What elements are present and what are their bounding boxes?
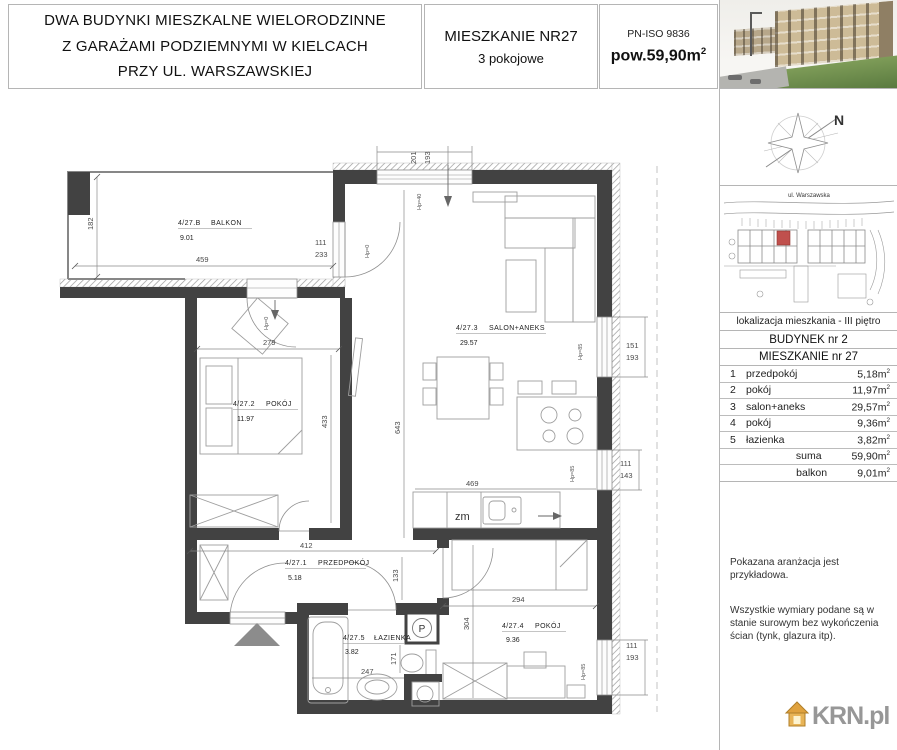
room-id-salon: 4/27.3 xyxy=(456,325,478,332)
wardrobe-hall xyxy=(200,545,228,600)
location-line: lokalizacja mieszkania - III piętro xyxy=(720,313,897,331)
row-name: suma xyxy=(746,450,851,462)
entrance-marker xyxy=(234,623,280,646)
total-area: pow.59,90m2 xyxy=(611,46,706,65)
photo-car xyxy=(750,79,761,84)
dim-182: 182 xyxy=(86,217,95,230)
toilet xyxy=(401,650,436,676)
dim-304: 304 xyxy=(462,617,471,630)
row-area: 11,97m2 xyxy=(852,384,890,397)
row-area: 3,82m2 xyxy=(857,434,890,447)
norm-label: PN-ISO 9836 xyxy=(627,28,689,40)
krn-logo: KRN.pl xyxy=(784,700,889,727)
table-row-suma: suma 59,90m2 xyxy=(720,449,897,466)
dim-193: 193 xyxy=(626,653,639,662)
room-name-balkon: BALKON xyxy=(211,220,242,227)
armchair xyxy=(232,298,288,354)
row-name: balkon xyxy=(746,467,857,479)
bedroom2-window xyxy=(597,640,612,695)
dim-294: 294 xyxy=(512,595,525,604)
dimension-labels: 459 182 111 233 201 193 279 433 643 151 … xyxy=(86,151,639,676)
bedroom-balcony-door xyxy=(247,279,297,298)
ann-hp40: Hp=40 xyxy=(417,194,423,210)
shaft-label: P xyxy=(419,624,426,635)
compass-north-label: N xyxy=(834,112,844,128)
compass-rose: N xyxy=(720,89,897,185)
bathroom-door-opening xyxy=(348,603,396,615)
note-dimensions: Wszystkie wymiary podane są w stanie sur… xyxy=(730,604,892,643)
project-title-line3: PRZY UL. WARSZAWSKIEJ xyxy=(118,59,313,85)
dim-247: 247 xyxy=(361,667,374,676)
row-name: pokój xyxy=(746,384,852,396)
coffee-table xyxy=(506,260,536,312)
project-title-line2: Z GARAŻAMI PODZIEMNYMI W KIELCACH xyxy=(62,34,368,60)
table-row: 3 salon+aneks 29,57m2 xyxy=(720,399,897,416)
room-id-pokoj4: 4/27.4 xyxy=(502,623,524,630)
dim-643: 643 xyxy=(393,421,402,434)
krn-house-icon xyxy=(784,700,810,727)
dim-111: 111 xyxy=(620,459,631,468)
room-name-salon: SALON+ANEKS xyxy=(489,325,545,332)
row-area: 29,57m2 xyxy=(851,401,890,414)
compass-box: N xyxy=(720,89,897,186)
room-area-pokoj4: 9.36 xyxy=(506,637,520,644)
dim-193: 193 xyxy=(626,353,639,362)
desk xyxy=(507,666,565,698)
wardrobe-bedroom2 xyxy=(443,663,507,699)
row-name: pokój xyxy=(746,417,857,429)
dim-279: 279 xyxy=(263,338,276,347)
row-name: łazienka xyxy=(746,434,857,446)
room-id-balkon: 4/27.B xyxy=(178,220,201,227)
room-name-pokoj2: POKÓJ xyxy=(266,399,292,408)
ann-hp85: Hp=85 xyxy=(570,466,576,482)
dining-table xyxy=(423,357,503,419)
room-id-lazienka: 4/27.5 xyxy=(343,635,365,642)
dim-459: 459 xyxy=(196,255,209,264)
table-row: 1 przedpokój 5,18m2 xyxy=(720,366,897,383)
photo-car xyxy=(728,75,742,80)
norm-area-box: PN-ISO 9836 pow.59,90m2 xyxy=(599,4,718,89)
bedroom-door-opening xyxy=(279,528,309,540)
room-area-balkon: 9.01 xyxy=(180,235,194,242)
dim-111: 111 xyxy=(626,641,637,650)
dim-433: 433 xyxy=(320,415,329,428)
sofa xyxy=(505,196,595,322)
table-row: 5 łazienka 3,82m2 xyxy=(720,432,897,449)
krn-logo-text: KRN.pl xyxy=(812,705,889,728)
ann-hp0: Hp=0 xyxy=(365,245,371,258)
row-area: 5,18m2 xyxy=(857,368,890,381)
apartment-number: MIESZKANIE NR27 xyxy=(444,28,577,45)
row-number: 1 xyxy=(730,368,746,380)
room-id-przedpokoj: 4/27.1 xyxy=(285,560,307,567)
dim-151: 151 xyxy=(626,341,639,350)
row-number: 5 xyxy=(730,434,746,446)
row-area: 9,36m2 xyxy=(857,417,890,430)
building-photo xyxy=(720,0,897,89)
salon-side-window xyxy=(597,317,612,377)
table-row-balkon: balkon 9,01m2 xyxy=(720,465,897,482)
dim-133: 133 xyxy=(391,569,400,582)
room-name-lazienka: ŁAZIENKA xyxy=(374,635,411,642)
ann-hp85: Hp=85 xyxy=(581,664,587,680)
project-title-line1: DWA BUDYNKI MIESZKALNE WIELORODZINNE xyxy=(44,8,386,34)
dim-193: 193 xyxy=(423,151,432,164)
photo-lamp-post xyxy=(750,12,752,56)
row-name: przedpokój xyxy=(746,368,857,380)
dim-412: 412 xyxy=(300,541,313,550)
room-name-przedpokoj: PRZEDPOKÓJ xyxy=(318,558,369,567)
wardrobe-bedroom xyxy=(190,495,278,527)
room-area-pokoj2: 11.97 xyxy=(237,416,254,423)
room-id-pokoj2: 4/27.2 xyxy=(233,401,255,408)
site-plan-drawing: ul. Warszawska xyxy=(720,186,897,312)
room-area-lazienka: 3.82 xyxy=(345,649,359,656)
table-row: 4 pokój 9,36m2 xyxy=(720,416,897,433)
site-street-label: ul. Warszawska xyxy=(788,193,830,199)
row-number: 3 xyxy=(730,401,746,413)
dim-111: 111 xyxy=(315,238,326,247)
ann-dishwasher: zm xyxy=(455,511,470,523)
apartment-line: MIESZKANIE nr 27 xyxy=(720,349,897,366)
ann-hp85: Hp=85 xyxy=(578,344,584,360)
ann-hp0: Hp=0 xyxy=(264,317,270,330)
note-arrangement: Pokazana aranżacja jest przykładowa. xyxy=(730,556,892,582)
sidebar: N ul. Warszawska xyxy=(719,0,897,750)
single-bed xyxy=(452,540,587,590)
dim-469: 469 xyxy=(466,479,479,488)
site-plan: ul. Warszawska xyxy=(720,186,897,313)
row-number: 2 xyxy=(730,384,746,396)
floor-plan: P xyxy=(38,130,730,750)
row-number: 4 xyxy=(730,417,746,429)
dim-233: 233 xyxy=(315,250,328,259)
desk-shelf xyxy=(567,685,585,698)
dimension-lines xyxy=(72,146,648,698)
bathtub xyxy=(308,617,348,703)
kitchen-counter xyxy=(413,381,597,528)
dim-201: 201 xyxy=(409,151,418,164)
dim-143: 143 xyxy=(620,471,633,480)
kitchen-window xyxy=(597,450,612,490)
room-area-table: 1 przedpokój 5,18m2 2 pokój 11,97m2 3 sa… xyxy=(720,366,897,482)
row-area: 9,01m2 xyxy=(857,467,890,480)
site-highlighted-unit xyxy=(777,231,790,245)
apartment-number-box: MIESZKANIE NR27 3 pokojowe xyxy=(424,4,598,89)
shelf xyxy=(473,192,517,202)
row-area: 59,90m2 xyxy=(851,450,890,463)
room-area-przedpokoj: 5.18 xyxy=(288,575,302,582)
apartment-type: 3 pokojowe xyxy=(478,51,544,66)
project-title-box: DWA BUDYNKI MIESZKALNE WIELORODZINNE Z G… xyxy=(8,4,422,89)
room-name-pokoj4: POKÓJ xyxy=(535,621,561,630)
dim-171: 171 xyxy=(389,652,398,665)
page: DWA BUDYNKI MIESZKALNE WIELORODZINNE Z G… xyxy=(0,0,897,750)
table-row: 2 pokój 11,97m2 xyxy=(720,383,897,400)
room-area-salon: 29.57 xyxy=(460,340,478,347)
row-name: salon+aneks xyxy=(746,401,851,413)
notes: Pokazana aranżacja jest przykładowa. Wsz… xyxy=(730,556,892,643)
salon-top-window xyxy=(377,170,472,184)
building-line: BUDYNEK nr 2 xyxy=(720,331,897,349)
